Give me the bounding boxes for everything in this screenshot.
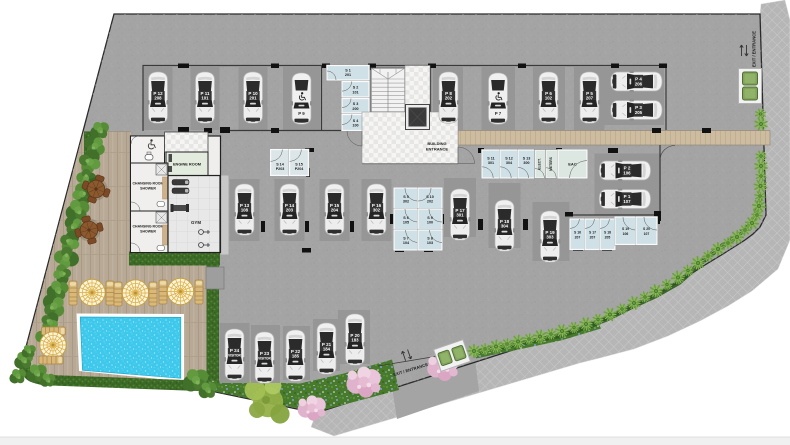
svg-text:302: 302 xyxy=(373,208,381,213)
svg-text:BUILDING: BUILDING xyxy=(427,141,446,146)
svg-text:100: 100 xyxy=(352,124,358,128)
svg-text:S 4: S 4 xyxy=(353,119,359,123)
svg-text:201: 201 xyxy=(249,96,257,101)
svg-text:107: 107 xyxy=(623,199,631,204)
svg-text:185: 185 xyxy=(292,354,300,359)
svg-text:205: 205 xyxy=(635,110,643,115)
svg-text:S 8: S 8 xyxy=(427,236,433,240)
svg-text:S 7: S 7 xyxy=(403,236,409,240)
svg-text:P203: P203 xyxy=(276,167,285,171)
svg-text:108: 108 xyxy=(241,208,249,213)
svg-text:101: 101 xyxy=(201,96,209,101)
svg-text:100: 100 xyxy=(427,221,433,225)
svg-text:P204: P204 xyxy=(295,167,305,171)
svg-text:207: 207 xyxy=(586,96,594,101)
svg-text:CHANGING ROOM: CHANGING ROOM xyxy=(133,225,164,229)
svg-text:301: 301 xyxy=(456,213,464,218)
svg-text:101: 101 xyxy=(352,90,358,94)
svg-text:S 16: S 16 xyxy=(574,231,581,235)
svg-text:201: 201 xyxy=(345,73,351,77)
svg-text:202: 202 xyxy=(427,200,433,204)
svg-text:EAC: EAC xyxy=(568,161,577,166)
svg-text:200: 200 xyxy=(352,107,358,111)
svg-text:ENGINE ROOM: ENGINE ROOM xyxy=(173,162,201,167)
svg-text:S 3: S 3 xyxy=(353,102,359,106)
svg-text:P 7: P 7 xyxy=(495,111,502,116)
svg-text:P 9: P 9 xyxy=(298,111,305,116)
svg-text:104: 104 xyxy=(403,241,410,245)
svg-text:300: 300 xyxy=(523,161,529,165)
svg-text:EXIT / ENTRANCE: EXIT / ENTRANCE xyxy=(752,31,757,67)
svg-text:S 18: S 18 xyxy=(604,231,611,235)
svg-text:102: 102 xyxy=(545,96,553,101)
svg-text:S 13: S 13 xyxy=(523,156,531,160)
svg-text:184: 184 xyxy=(323,347,331,352)
svg-text:204: 204 xyxy=(331,208,339,213)
svg-text:SHOWER: SHOWER xyxy=(140,230,156,234)
svg-text:S 5: S 5 xyxy=(403,195,409,199)
svg-text:106: 106 xyxy=(623,170,631,175)
svg-text:208: 208 xyxy=(154,96,162,101)
svg-text:GYM: GYM xyxy=(191,220,201,225)
svg-text:301: 301 xyxy=(488,161,494,165)
svg-text:302: 302 xyxy=(403,200,409,204)
svg-text:ENTRANCE: ENTRANCE xyxy=(426,147,449,152)
svg-text:303: 303 xyxy=(546,235,554,240)
svg-text:S 17: S 17 xyxy=(589,231,596,235)
svg-text:106: 106 xyxy=(623,232,629,236)
svg-text:202: 202 xyxy=(445,96,453,101)
svg-text:304: 304 xyxy=(506,161,513,165)
svg-text:S 15: S 15 xyxy=(295,162,303,166)
svg-text:304: 304 xyxy=(501,224,509,229)
svg-text:S 9: S 9 xyxy=(427,216,433,220)
svg-text:S 2: S 2 xyxy=(353,86,359,90)
svg-text:P 23: P 23 xyxy=(260,351,270,356)
svg-text:205: 205 xyxy=(605,235,611,239)
svg-text:105: 105 xyxy=(403,221,409,225)
svg-text:ELECT.: ELECT. xyxy=(538,158,542,169)
svg-text:S 10: S 10 xyxy=(426,195,434,199)
svg-text:203: 203 xyxy=(286,208,294,213)
svg-text:S 20: S 20 xyxy=(643,227,650,231)
svg-text:103: 103 xyxy=(427,241,433,245)
svg-text:S 11: S 11 xyxy=(487,156,494,160)
svg-text:S 6: S 6 xyxy=(403,216,409,220)
svg-text:107: 107 xyxy=(644,232,650,236)
svg-text:S 12: S 12 xyxy=(505,156,513,160)
svg-text:206: 206 xyxy=(635,81,643,86)
svg-text:VISITOR: VISITOR xyxy=(228,354,241,358)
svg-text:S 19: S 19 xyxy=(622,227,629,231)
svg-text:VISITOR: VISITOR xyxy=(258,357,271,361)
svg-text:METERS: METERS xyxy=(549,156,553,171)
svg-text:183: 183 xyxy=(351,338,359,343)
svg-text:207: 207 xyxy=(590,235,596,239)
svg-text:207: 207 xyxy=(575,235,581,239)
svg-text:CHANGING ROOM: CHANGING ROOM xyxy=(133,182,164,186)
svg-text:S 1: S 1 xyxy=(345,68,351,72)
svg-text:P 24: P 24 xyxy=(230,348,240,353)
svg-text:S 14: S 14 xyxy=(276,162,285,166)
svg-text:SHOWER: SHOWER xyxy=(140,187,156,191)
